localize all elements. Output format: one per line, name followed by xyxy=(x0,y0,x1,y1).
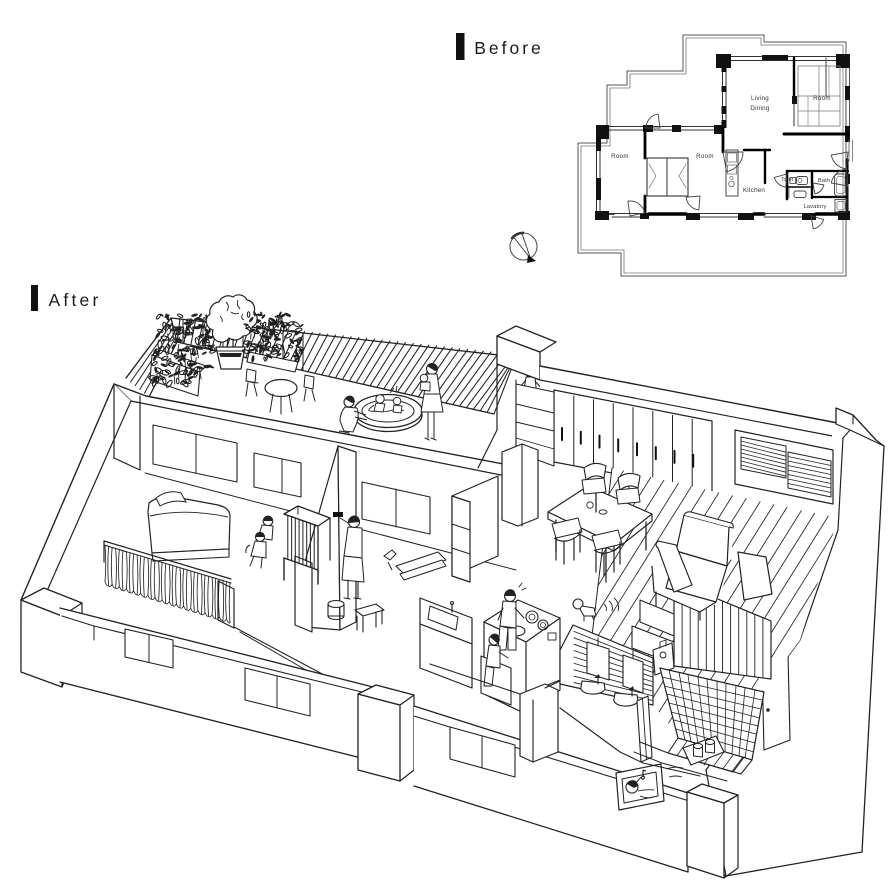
svg-text:After: After xyxy=(49,290,102,310)
svg-text:Before: Before xyxy=(474,38,544,58)
svg-text:Room: Room xyxy=(813,95,831,102)
svg-text:Room: Room xyxy=(611,153,629,160)
svg-text:Lavatory: Lavatory xyxy=(803,204,826,210)
svg-text:Kitchen: Kitchen xyxy=(743,187,765,194)
svg-text:Toilet: Toilet xyxy=(781,177,794,183)
svg-text:Room: Room xyxy=(696,153,714,160)
svg-text:Bath: Bath xyxy=(818,178,830,184)
svg-text:Dining: Dining xyxy=(750,105,770,112)
svg-text:Living: Living xyxy=(751,95,769,102)
